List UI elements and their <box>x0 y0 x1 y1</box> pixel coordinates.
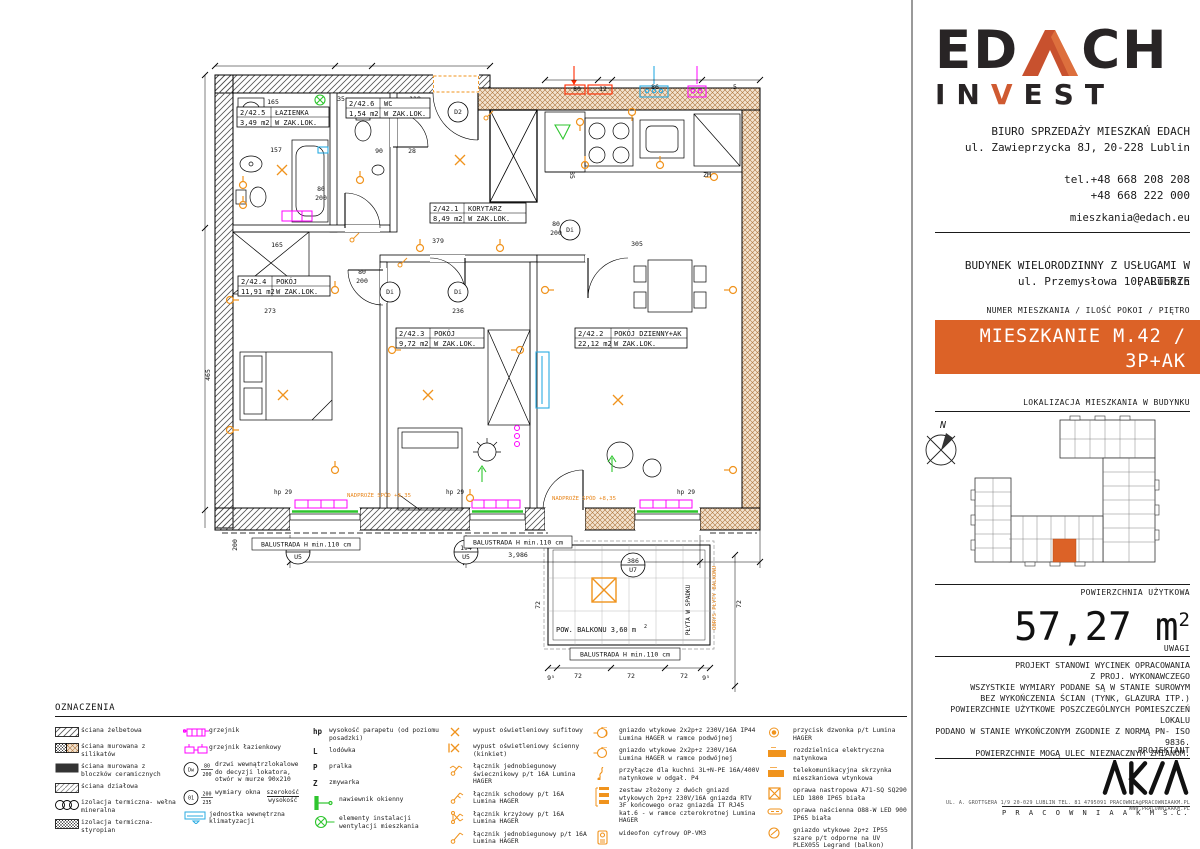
wall-partition-icon <box>55 783 81 793</box>
dim: 80 <box>317 185 325 193</box>
svg-text:2/42.3: 2/42.3 <box>399 330 424 338</box>
door-symbol-icon: Dw80200 <box>183 761 215 778</box>
kitchen-connection-icon <box>593 767 619 780</box>
room-label: 2/42.5ŁAZIENKA 3,49 m2W ZAK.LOK. <box>237 107 329 127</box>
legend-column-devices: przycisk dzwonka p/t Lumina HAGER rozdzi… <box>767 727 907 849</box>
installation-shaft <box>490 110 537 202</box>
dim: 273 <box>264 307 276 315</box>
hp-label: hp 29 <box>446 489 464 496</box>
wall-concrete-icon <box>55 727 81 737</box>
sales-office-name: BIURO SPRZEDAŻY MIESZKAŃ EDACH <box>935 124 1190 140</box>
legend-item: Dw80200 drzwi wewnątrzlokalowe do decyzj… <box>183 761 307 784</box>
legend-item: Llodówka <box>313 747 439 758</box>
ventilation-icon <box>313 815 339 829</box>
legend-item: łącznik krzyżowy p/t 16A Lumina HAGER <box>447 811 587 826</box>
dim: 9⁵ <box>547 674 555 682</box>
svg-text:3,49 m2: 3,49 m2 <box>240 119 270 127</box>
dim: 200 <box>550 229 562 237</box>
legend-item: grzejnik <box>183 727 307 739</box>
svg-text:200: 200 <box>202 772 211 778</box>
ceiling-outlet-icon <box>447 727 473 737</box>
usable-area-value: 57,27 m2 <box>935 598 1190 650</box>
room-label: 2/42.3POKÓJ 9,72 m2W ZAK.LOK. <box>396 328 484 348</box>
legend-item: łącznik jednobiegunowy świecznikowy p/t … <box>447 763 587 786</box>
nadproze-label: NADPROŻE SPÓD +8,35 <box>347 492 411 499</box>
building-address: ul. Przemysłowa 10, Lublin <box>935 274 1190 290</box>
switch-chandelier-icon <box>447 763 473 776</box>
dim: 305 <box>631 240 643 248</box>
notes-header: UWAGI <box>935 644 1190 653</box>
legend-item: Ppralka <box>313 763 439 774</box>
window-vent-icon <box>313 796 339 810</box>
hp-label: hp 29 <box>274 489 292 496</box>
drawing-sheet: 165 35 118 80 12 86 5 157 165 273 379 23… <box>0 0 1200 849</box>
legend-item: izolacja termiczna- styropian <box>55 819 177 834</box>
room-label: 2/42.4POKÓJ 11,91 m2W ZAK.LOK. <box>238 276 330 296</box>
email: mieszkania@edach.eu <box>935 212 1190 224</box>
roof-icon <box>1022 30 1078 76</box>
hp-label: hp 29 <box>677 489 695 496</box>
window-symbol-icon: 01200235 <box>183 789 215 806</box>
legend-column-sockets: gniazdo wtykowe 2x2p+z 230V/16A IP44 Lum… <box>593 727 761 849</box>
zm-label: ZM <box>703 171 711 179</box>
svg-text:W ZAK.LOK.: W ZAK.LOK. <box>434 340 476 348</box>
dim-circle-bottom: U7 <box>629 566 637 574</box>
legend-item: 01200235 wymiary okna szerokośćwysokość <box>183 789 307 806</box>
svg-text:ŁAZIENKA: ŁAZIENKA <box>274 109 310 117</box>
legend-item: telekomunikacyjna skrzynka mieszkaniowa … <box>767 767 907 782</box>
legend-item: wypust oświetleniowy sufitowy <box>447 727 587 738</box>
dim: 165 <box>267 98 279 106</box>
telecom-box-icon <box>767 767 793 778</box>
svg-text:W ZAK.LOK.: W ZAK.LOK. <box>276 288 318 296</box>
building-footprint <box>971 416 1159 566</box>
legend: OZNACZENIA ściana żelbetowa ściana murow… <box>55 703 907 717</box>
dim: 72 <box>735 600 743 608</box>
phone-1: tel.+48 668 208 208 <box>935 172 1190 188</box>
title-block-sidebar: ED CH INVEST BIURO SPRZEDAŻY MIESZKAŃ ED… <box>913 0 1200 849</box>
towel-radiator-icon <box>183 744 209 756</box>
notes-text: PROJEKT STANOWI WYCINEK OPRACOWANIA Z PR… <box>925 660 1190 759</box>
room-label: 2/42.6WC 1,54 m2W ZAK.LOK. <box>346 98 430 118</box>
svg-text:W ZAK.LOK.: W ZAK.LOK. <box>468 215 510 223</box>
designer-header: PROJEKTANT <box>935 746 1190 755</box>
plyta-label: PŁYTA W SPADKU <box>685 584 692 635</box>
dim: 200 <box>231 539 239 551</box>
legend-item: przycisk dzwonka p/t Lumina HAGER <box>767 727 907 742</box>
switch-cross-icon <box>447 811 473 824</box>
svg-text:1,54 m2: 1,54 m2 <box>349 110 379 118</box>
akm-address: UL. A. GROTTGERA 1/9 20-029 LUBLIN TEL. … <box>925 800 1190 812</box>
insulation-styrofoam-icon <box>55 819 81 829</box>
legend-item: jednostka wewnętrzna klimatyzacji <box>183 811 307 826</box>
dim: 72 <box>534 601 542 609</box>
insulation-wool-icon <box>55 799 81 811</box>
legend-item: rozdzielnica elektryczna natynkowa <box>767 747 907 762</box>
legend-column-walls: ściana żelbetowa ściana murowana z silik… <box>55 727 177 839</box>
legend-item: elementy instalacji wentylacji mieszkani… <box>313 815 439 830</box>
dim: 80 <box>358 268 366 276</box>
legend-item: gniazdo wtykowe 2x2p+z 230V/16A Lumina H… <box>593 747 761 762</box>
rule <box>935 656 1190 657</box>
balcony-area-sup: 2 <box>644 624 647 630</box>
electrical-symbols <box>227 109 737 502</box>
legend-item: izolacja termiczna- wełna mineralna <box>55 799 177 814</box>
building-location-map: N <box>913 414 1200 576</box>
door-tag: Di <box>454 288 462 296</box>
legend-column-fixtures: grzejnik grzejnik łazienkowy Dw80200 drz… <box>183 727 307 831</box>
dim: 5 <box>733 83 737 91</box>
dim: 9⁵ <box>702 674 710 682</box>
dim: 72 <box>627 672 635 680</box>
svg-text:2/42.2: 2/42.2 <box>578 330 603 338</box>
dim: 72 <box>680 672 688 680</box>
legend-column-abbrev: hpwysokość parapetu (od poziomu posadzki… <box>313 727 439 835</box>
legend-item: ściana żelbetowa <box>55 727 177 738</box>
highlighted-unit <box>1053 539 1076 562</box>
svg-text:2/42.1: 2/42.1 <box>433 205 458 213</box>
door-tag: Di <box>566 226 574 234</box>
legend-item: hpwysokość parapetu (od poziomu posadzki… <box>313 727 439 742</box>
area-header: POWIERZCHNIA UŻYTKOWA <box>935 588 1190 597</box>
edach-logo-invest: INVEST <box>935 80 1190 110</box>
dim-circle-top: 386 <box>627 557 639 565</box>
balustrada-label: BALUSTRADA H min.110 cm <box>580 651 670 659</box>
legend-item: gniazdo wtykowe 2x2p+z 230V/16A IP44 Lum… <box>593 727 761 742</box>
wall-silicate-icon <box>55 743 81 753</box>
svg-text:8,49 m2: 8,49 m2 <box>433 215 463 223</box>
svg-text:9,72 m2: 9,72 m2 <box>399 340 429 348</box>
dim: 86 <box>651 83 659 91</box>
dim: 80 <box>552 220 560 228</box>
rule <box>935 232 1190 233</box>
door-tag: D2 <box>454 108 462 116</box>
dim: 379 <box>432 237 444 245</box>
svg-text:Dw: Dw <box>188 768 195 774</box>
room-label: 2/42.1KORYTARZ 8,49 m2W ZAK.LOK. <box>430 203 526 223</box>
dim: 236 <box>452 307 464 315</box>
ceiling-lamp-icon <box>767 787 793 800</box>
svg-text:2/42.5: 2/42.5 <box>240 109 265 117</box>
svg-text:80: 80 <box>204 764 210 770</box>
switch-stair-icon <box>447 791 473 804</box>
svg-text:200: 200 <box>202 791 211 797</box>
legend-item: łącznik jednobiegunowy p/t 16A Lumina HA… <box>447 831 587 846</box>
dim: 90 <box>375 147 383 155</box>
window-fraction: szerokośćwysokość <box>267 789 300 804</box>
media-socket-set-icon <box>593 787 619 809</box>
compass-icon: N <box>926 420 956 465</box>
floor-plan-drawing: 165 35 118 80 12 86 5 157 165 273 379 23… <box>0 0 910 700</box>
apartment-floor: PIĘTRO 2 <box>935 374 1186 399</box>
dim-circle-bottom: U5 <box>294 553 302 561</box>
akm-logo <box>1102 760 1190 796</box>
wall-outlet-icon <box>447 743 473 753</box>
legend-header: OZNACZENIA <box>55 703 907 717</box>
svg-text:POKÓJ: POKÓJ <box>276 277 297 286</box>
wall-ceramic-icon <box>55 763 81 773</box>
dim: 3,986 <box>508 551 528 559</box>
wall-lamp-icon <box>767 807 793 816</box>
edach-logo: ED CH INVEST <box>935 26 1190 110</box>
svg-text:2/42.6: 2/42.6 <box>349 100 374 108</box>
legend-item: przyłącze dla kuchni 3L+N-PE 16A/400V na… <box>593 767 761 782</box>
door-tag-circles <box>380 102 580 302</box>
furniture <box>233 98 742 510</box>
svg-text:KORYTARZ: KORYTARZ <box>468 205 502 213</box>
svg-text:POKÓJ DZIENNY+AK: POKÓJ DZIENNY+AK <box>614 329 682 338</box>
svg-text:WC: WC <box>384 100 392 108</box>
dim-circle-bottom: U5 <box>462 553 470 561</box>
distribution-board-icon <box>767 747 793 758</box>
logo-v: V <box>991 78 1024 111</box>
dim: 85 <box>568 171 576 179</box>
socket-double-ip44-icon <box>593 727 619 739</box>
doorbell-button-icon <box>767 727 793 738</box>
location-header: LOKALIZACJA MIESZKANIA W BUDYNKU <box>935 398 1190 407</box>
apartment-banner: MIESZKANIE M.42 / 3P+AK PIĘTRO 2 <box>935 320 1200 374</box>
socket-icons <box>227 109 737 502</box>
svg-text:POKÓJ: POKÓJ <box>434 329 455 338</box>
dim: 465 <box>204 369 212 381</box>
rule <box>935 584 1190 585</box>
legend-item: nawiewnik okienny <box>313 796 439 810</box>
dim: 200 <box>315 194 327 202</box>
legend-item: wypust oświetleniowy ścienny (kinkiet) <box>447 743 587 758</box>
rule <box>935 758 1190 759</box>
svg-text:W ZAK.LOK.: W ZAK.LOK. <box>384 110 426 118</box>
balcony-area-label: POW. BALKONU 3,60 m <box>556 626 636 634</box>
svg-text:W ZAK.LOK.: W ZAK.LOK. <box>275 119 317 127</box>
phone-2: +48 668 222 000 <box>935 188 1190 204</box>
legend-item: ściana murowana z silikatów <box>55 743 177 758</box>
svg-text:2/42.4: 2/42.4 <box>241 278 266 286</box>
ac-unit-icon <box>183 811 209 824</box>
door-tag: Di <box>386 288 394 296</box>
dim: 72 <box>574 672 582 680</box>
dim: 12 <box>599 85 607 93</box>
legend-item: gniazdo wtykowe 2p+z IP55 szare p/t odpo… <box>767 827 907 849</box>
svg-text:11,91 m2: 11,91 m2 <box>241 288 275 296</box>
nadproze-label: NADPROŻE SPÓD +8,35 <box>552 495 616 502</box>
switch-icons <box>350 111 493 267</box>
dim: 35 <box>337 95 345 103</box>
svg-text:22,12 m2: 22,12 m2 <box>578 340 612 348</box>
videophone-icon <box>593 830 619 846</box>
socket-double-icon <box>593 747 619 759</box>
balustrada-label: BALUSTRADA H min.110 cm <box>473 539 563 547</box>
legend-column-lighting: wypust oświetleniowy sufitowy wypust ośw… <box>447 727 587 849</box>
dim: 80 <box>573 85 581 93</box>
svg-text:235: 235 <box>202 800 211 806</box>
balcony-socket-icon <box>767 827 793 839</box>
dim: 165 <box>271 241 283 249</box>
unit-header: NUMER MIESZKANIA / ILOŚĆ POKOI / PIĘTRO <box>935 306 1190 315</box>
svg-text:W ZAK.LOK.: W ZAK.LOK. <box>614 340 656 348</box>
room-label: 2/42.2POKÓJ DZIENNY+AK 22,12 m2W ZAK.LOK… <box>575 328 687 348</box>
switch-single-icon <box>447 831 473 844</box>
legend-item: oprawa naścienna O88-W LED 900 IP65 biał… <box>767 807 907 822</box>
obrys-label: OBRYS PŁYTY BALKONU <box>712 566 718 630</box>
edach-logo-wordmark: ED CH <box>935 26 1190 76</box>
legend-item: grzejnik łazienkowy <box>183 744 307 756</box>
sales-office-address: ul. Zawieprzycka 8J, 20-228 Lublin <box>935 140 1190 156</box>
apartment-number: MIESZKANIE M.42 / 3P+AK <box>935 324 1186 374</box>
legend-item: ściana murowana z bloczków ceramicznych <box>55 763 177 778</box>
dim: 28 <box>408 147 416 155</box>
radiator-icon <box>183 727 209 739</box>
dim: 157 <box>270 146 282 154</box>
dim: 200 <box>356 277 368 285</box>
svg-text:01: 01 <box>188 795 194 801</box>
legend-item: ściana działowa <box>55 783 177 794</box>
balustrada-label: BALUSTRADA H min.110 cm <box>261 541 351 549</box>
legend-item: oprawa nastropowa A71-SQ SQ290 LED 1800 … <box>767 787 907 802</box>
rule <box>935 411 1190 412</box>
legend-item: zestaw złożony z dwóch gniazd wtykowych … <box>593 787 761 825</box>
svg-text:N: N <box>939 420 947 431</box>
legend-item: Zzmywarka <box>313 779 439 790</box>
legend-item: łącznik schodowy p/t 16A Lumina HAGER <box>447 791 587 806</box>
legend-item: wideofon cyfrowy OP-VM3 <box>593 830 761 846</box>
